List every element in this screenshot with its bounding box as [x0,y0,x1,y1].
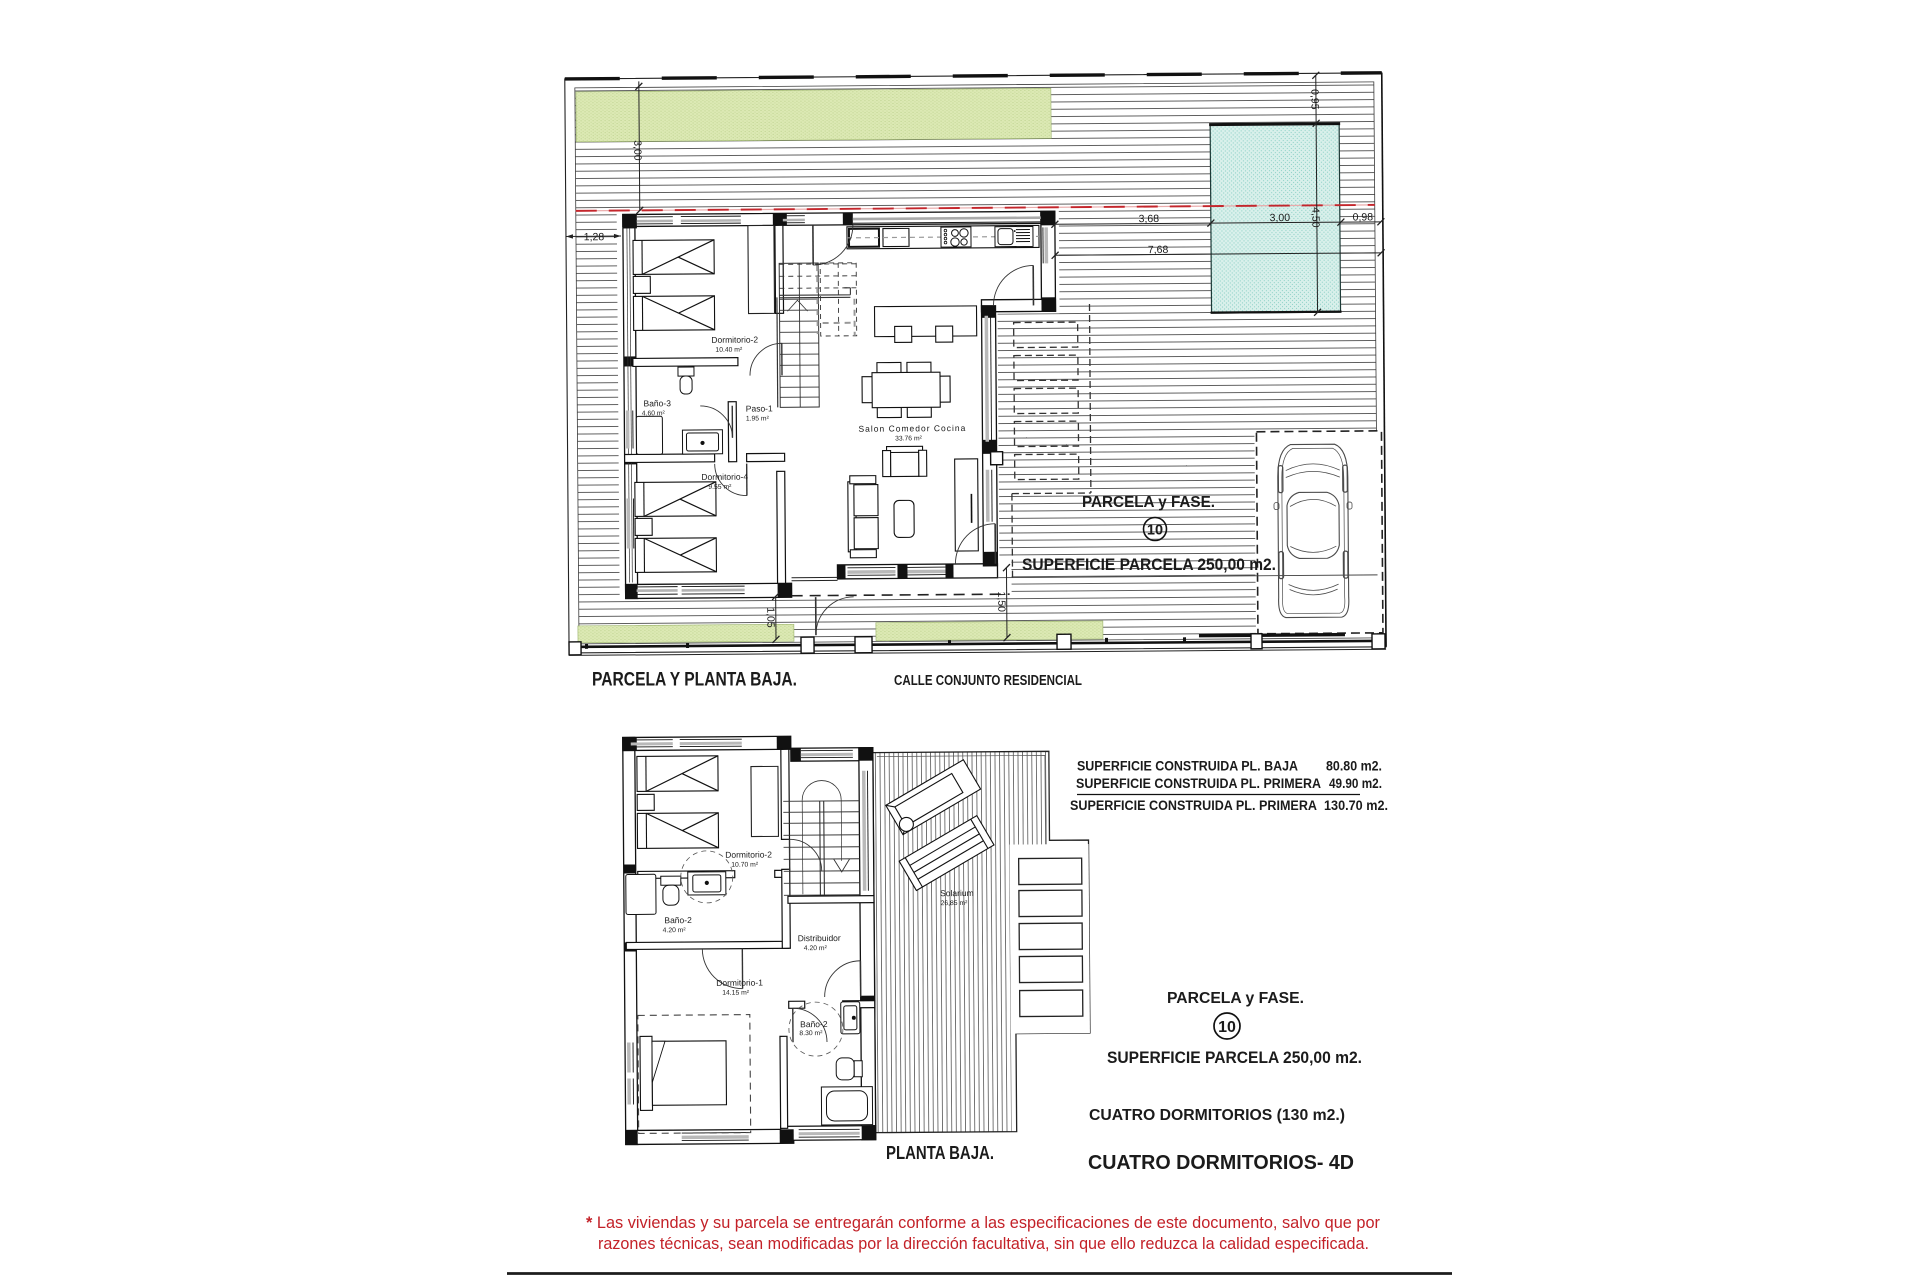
svg-text:PLANTA BAJA.: PLANTA BAJA. [886,1143,994,1163]
svg-text:1,05: 1,05 [764,607,776,628]
svg-text:4.60 m²: 4.60 m² [642,410,666,417]
svg-text:* Las viviendas y su parcela s: * Las viviendas y su parcela se entregar… [586,1214,1380,1232]
svg-text:Dormitorio-1: Dormitorio-1 [716,977,763,987]
svg-text:26,85 m²: 26,85 m² [941,900,969,907]
svg-text:3,00: 3,00 [631,140,643,161]
svg-text:10: 10 [1147,523,1163,539]
svg-text:Dormitorio-4: Dormitorio-4 [701,472,748,482]
svg-text:PARCELA y FASE.: PARCELA y FASE. [1082,494,1215,511]
svg-text:0,95: 0,95 [1308,89,1320,110]
svg-text:3,00: 3,00 [1270,212,1291,224]
svg-text:razones técnicas, sean modific: razones técnicas, sean modificadas por l… [598,1235,1369,1253]
svg-text:Solarium: Solarium [940,888,974,898]
svg-text:PARCELA Y PLANTA BAJA.: PARCELA Y PLANTA BAJA. [592,669,797,691]
svg-text:Baño-2: Baño-2 [664,915,692,925]
svg-text:7,68: 7,68 [1148,244,1169,256]
svg-text:14.15 m²: 14.15 m² [722,990,750,997]
svg-text:4.20 m²: 4.20 m² [663,927,687,934]
svg-text:SUPERFICIE PARCELA 250,00 m2.: SUPERFICIE PARCELA 250,00 m2. [1022,556,1276,574]
svg-text:Dormitorio-2: Dormitorio-2 [725,849,772,859]
svg-text:SUPERFICIE CONSTRUIDA PL. PRIM: SUPERFICIE CONSTRUIDA PL. PRIMERA [1070,798,1317,813]
svg-text:CUATRO DORMITORIOS- 4D: CUATRO DORMITORIOS- 4D [1088,1151,1354,1174]
svg-text:Dormitorio-2: Dormitorio-2 [711,335,758,345]
svg-text:1,28: 1,28 [584,231,605,243]
svg-text:Baño-3: Baño-3 [643,398,671,408]
svg-text:Baño-2: Baño-2 [800,1019,828,1029]
svg-text:SUPERFICIE PARCELA 250,00 m2.: SUPERFICIE PARCELA 250,00 m2. [1107,1048,1362,1067]
svg-text:CALLE CONJUNTO RESIDENCIAL: CALLE CONJUNTO RESIDENCIAL [894,673,1082,689]
svg-text:Salon Comedor Cocina: Salon Comedor Cocina [858,423,966,434]
svg-text:4,50: 4,50 [1309,207,1321,228]
svg-text:10: 10 [1218,1019,1236,1036]
svg-text:4.20 m²: 4.20 m² [804,945,828,952]
svg-text:SUPERFICIE CONSTRUIDA PL. BAJA: SUPERFICIE CONSTRUIDA PL. BAJA [1077,759,1298,774]
svg-text:33.76 m²: 33.76 m² [895,435,923,442]
svg-text:PARCELA y FASE.: PARCELA y FASE. [1167,990,1304,1007]
svg-text:3,68: 3,68 [1139,213,1160,225]
svg-text:SUPERFICIE CONSTRUIDA PL. PRIM: SUPERFICIE CONSTRUIDA PL. PRIMERA [1076,776,1321,791]
svg-text:10.70 m²: 10.70 m² [731,862,759,869]
svg-text:CUATRO DORMITORIOS (130 m2.): CUATRO DORMITORIOS (130 m2.) [1089,1107,1345,1124]
svg-text:1.95 m²: 1.95 m² [746,415,770,422]
svg-text:49.90 m2.: 49.90 m2. [1329,776,1382,791]
svg-text:Paso-1: Paso-1 [746,403,773,413]
svg-text:80.80 m2.: 80.80 m2. [1326,759,1382,774]
svg-text:Distribuidor: Distribuidor [798,933,841,943]
svg-text:10.40 m²: 10.40 m² [715,347,743,354]
svg-text:130.70 m2.: 130.70 m2. [1324,798,1388,813]
svg-text:0,98: 0,98 [1353,211,1374,223]
svg-text:8.30 m²: 8.30 m² [799,1030,823,1037]
svg-text:1,50: 1,50 [995,591,1007,612]
svg-text:9.55 m²: 9.55 m² [708,484,732,491]
